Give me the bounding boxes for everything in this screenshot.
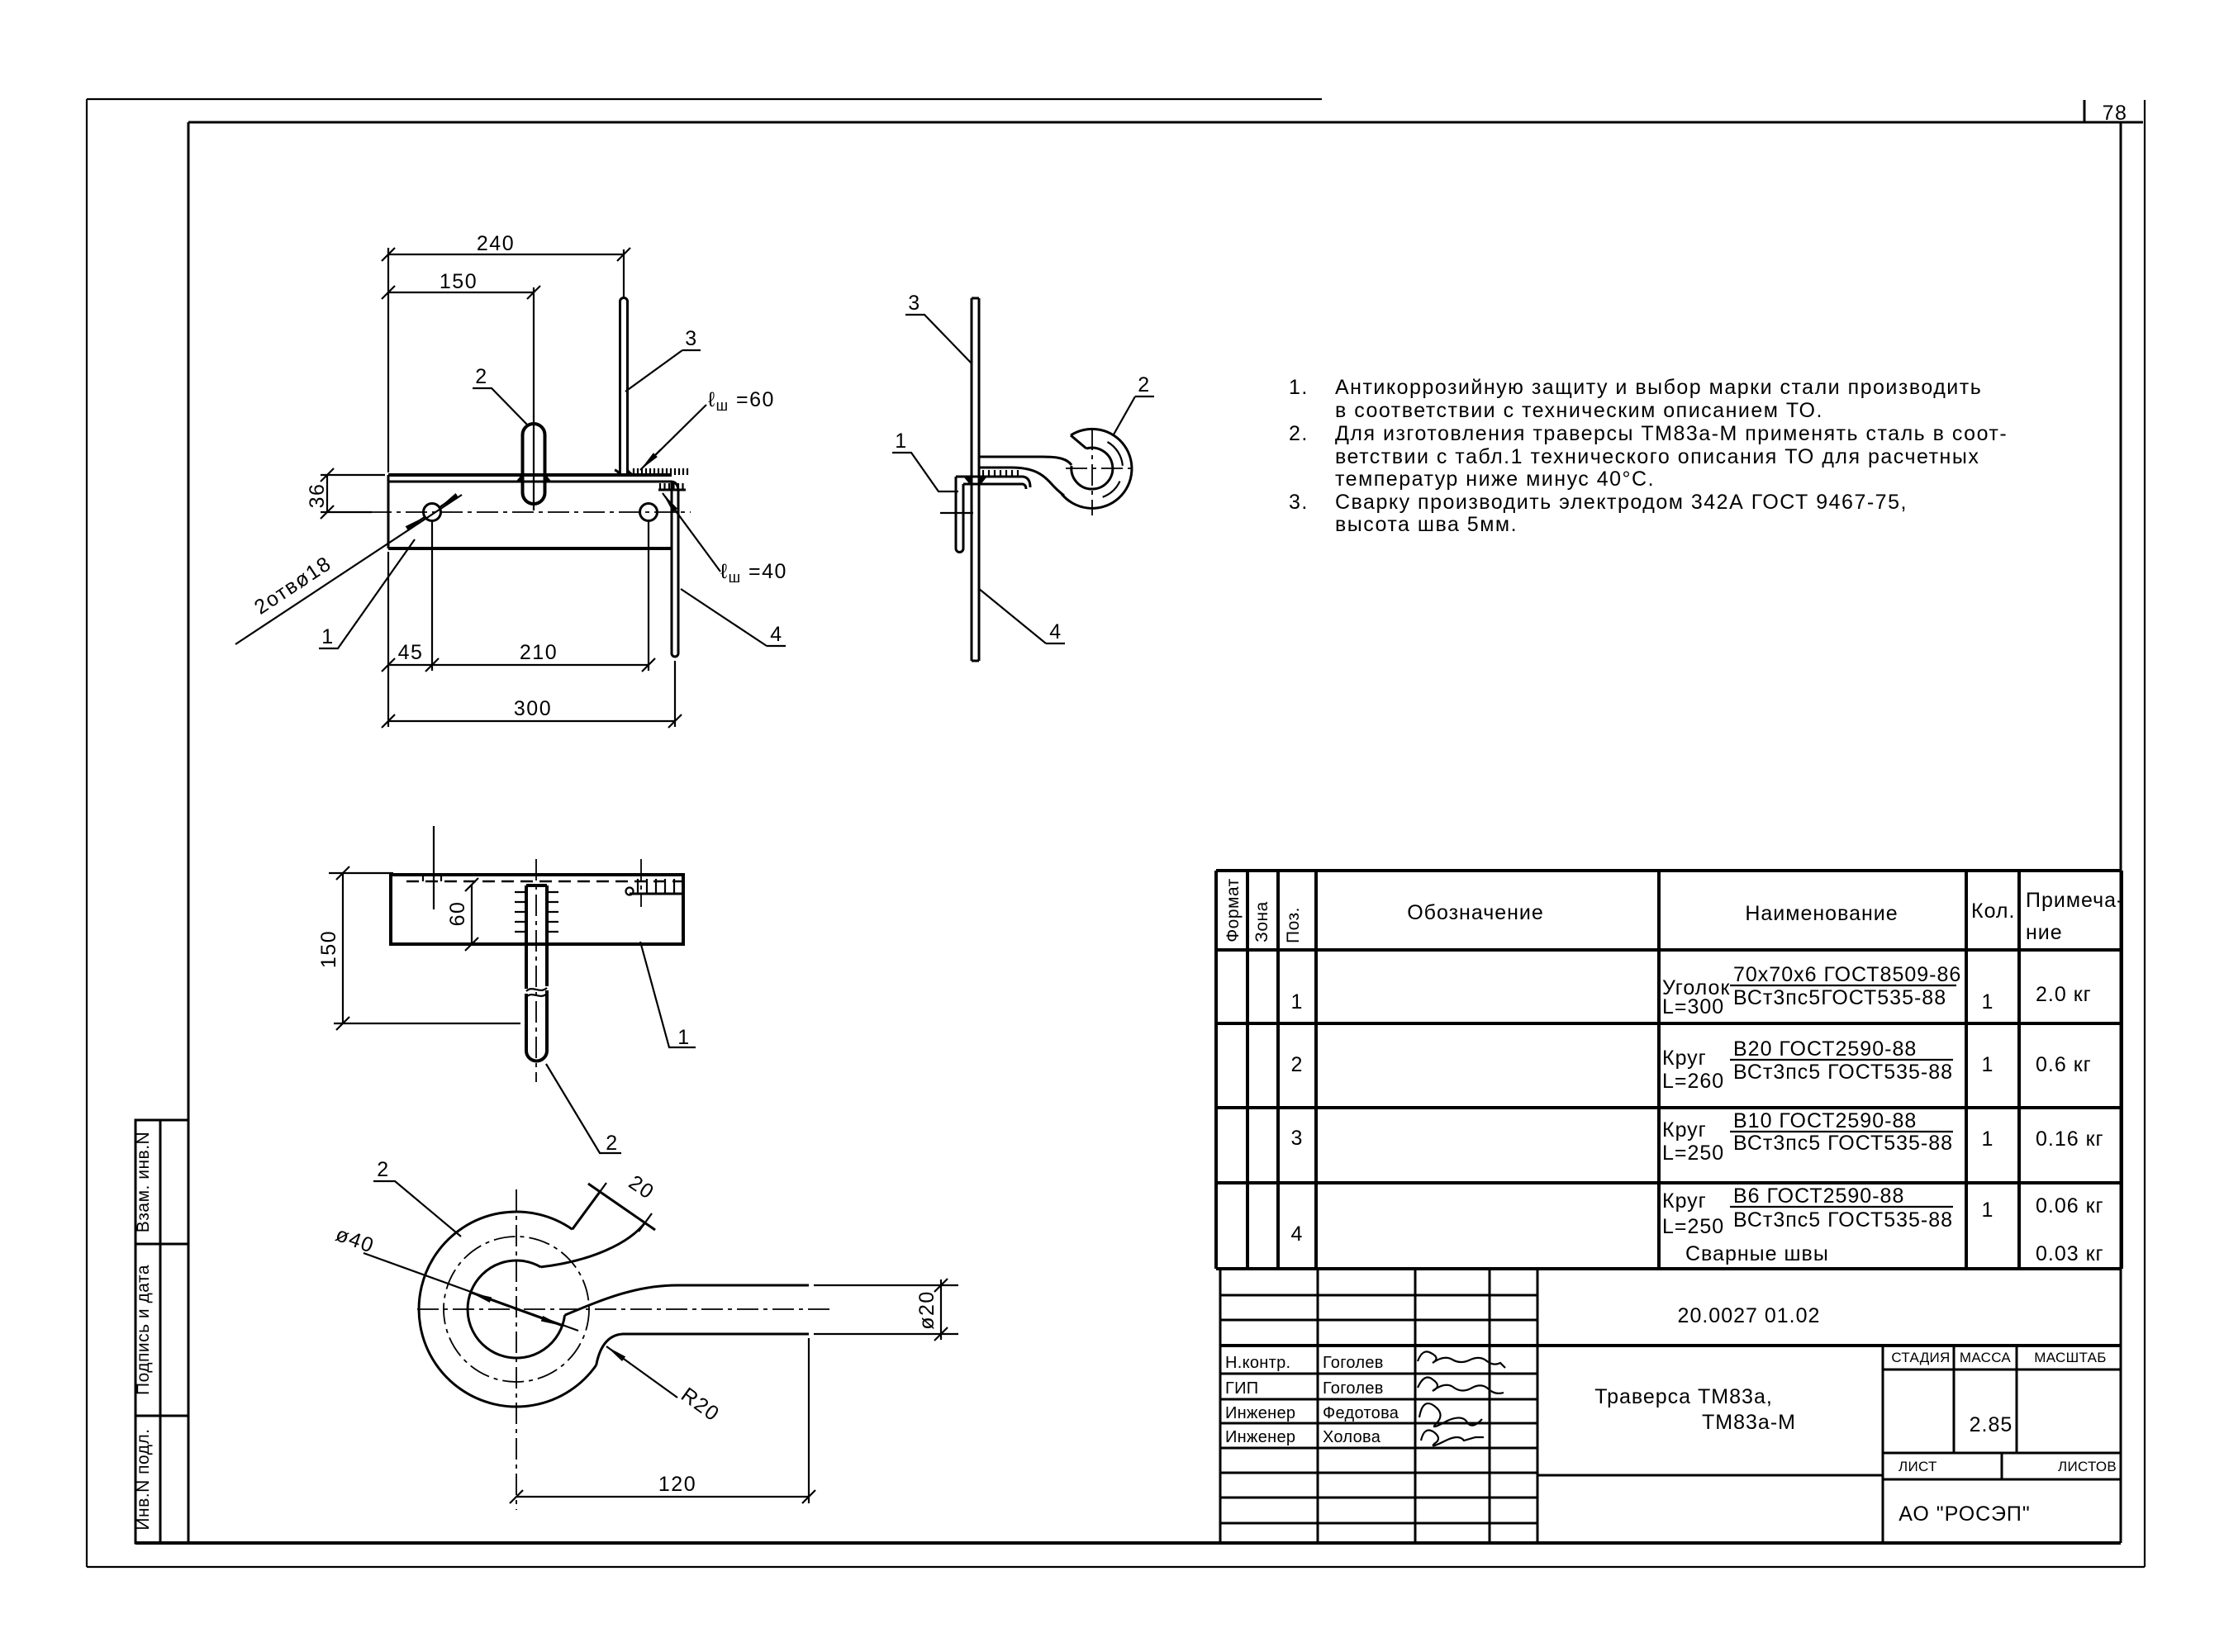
svg-text:3: 3 (1291, 1127, 1304, 1150)
svg-text:Зона: Зона (1252, 901, 1271, 942)
svg-text:L=300: L=300 (1662, 995, 1724, 1018)
svg-text:0.03 кг: 0.03 кг (2036, 1242, 2104, 1265)
svg-text:1: 1 (1982, 1053, 1994, 1076)
svg-text:1.: 1. (1289, 376, 1309, 399)
svg-text:1: 1 (1291, 990, 1304, 1014)
svg-text:Поз.: Поз. (1284, 907, 1303, 943)
svg-text:Сварные швы: Сварные швы (1685, 1242, 1829, 1265)
svg-text:3: 3 (908, 292, 920, 315)
svg-text:1: 1 (1982, 990, 1994, 1014)
svg-text:ветствии с табл.1 технического: ветствии с табл.1 технического описания … (1335, 445, 1979, 468)
svg-text:ВСт3пс5 ГОСТ535-88: ВСт3пс5 ГОСТ535-88 (1733, 1208, 1953, 1232)
svg-text:Кол.: Кол. (1971, 900, 2015, 923)
svg-text:4: 4 (1291, 1222, 1304, 1246)
svg-text:1: 1 (1982, 1127, 1994, 1151)
svg-text:1: 1 (1982, 1199, 1994, 1222)
svg-text:В20 ГОСТ2590-88: В20 ГОСТ2590-88 (1733, 1037, 1917, 1061)
svg-text:2: 2 (475, 365, 487, 388)
svg-text:Формат: Формат (1224, 878, 1243, 942)
svg-text:L=250: L=250 (1662, 1215, 1724, 1238)
svg-text:3: 3 (685, 327, 697, 350)
svg-text:2.0 кг: 2.0 кг (2036, 983, 2092, 1006)
svg-text:1: 1 (321, 625, 334, 648)
svg-text:ø20: ø20 (915, 1290, 939, 1330)
svg-text:ВСт3пс5 ГОСТ535-88: ВСт3пс5 ГОСТ535-88 (1733, 1061, 1953, 1084)
svg-text:240: 240 (477, 232, 515, 255)
svg-text:Гоголев: Гоголев (1323, 1354, 1384, 1372)
svg-text:2: 2 (377, 1158, 389, 1181)
svg-text:Примеча-: Примеча- (2026, 889, 2124, 912)
svg-text:4: 4 (770, 623, 782, 646)
svg-text:150: 150 (440, 270, 478, 293)
svg-text:150: 150 (317, 930, 340, 968)
svg-text:20.0027 01.02: 20.0027 01.02 (1678, 1304, 1821, 1327)
svg-text:1: 1 (895, 430, 907, 453)
svg-text:45: 45 (398, 641, 424, 664)
svg-text:в соответствии с техническим о: в соответствии с техническим описанием Т… (1335, 399, 1823, 422)
svg-text:ЛИСТОВ: ЛИСТОВ (2058, 1459, 2117, 1474)
svg-text:Сварку производить электродом: Сварку производить электродом 342А ГОСТ … (1335, 491, 1908, 514)
svg-text:L=260: L=260 (1662, 1070, 1724, 1093)
svg-text:Траверса ТМ83а,: Траверса ТМ83а, (1594, 1385, 1773, 1408)
svg-text:ние: ние (2026, 921, 2063, 944)
svg-text:2.85: 2.85 (1970, 1413, 2013, 1436)
svg-text:70x70x6 ГОСТ8509-86: 70x70x6 ГОСТ8509-86 (1733, 963, 1961, 986)
svg-text:300: 300 (514, 697, 552, 720)
svg-text:Н.контр.: Н.контр. (1225, 1354, 1290, 1372)
svg-text:СТАДИЯ: СТАДИЯ (1891, 1350, 1950, 1365)
svg-text:1: 1 (677, 1026, 690, 1049)
svg-text:В10 ГОСТ2590-88: В10 ГОСТ2590-88 (1733, 1109, 1917, 1132)
svg-text:0.06 кг: 0.06 кг (2036, 1194, 2104, 1218)
svg-text:ЛИСТ: ЛИСТ (1898, 1459, 1937, 1474)
svg-text:4: 4 (1049, 620, 1062, 643)
svg-text:Для изготовления траверсы ТМ83: Для изготовления траверсы ТМ83а-М примен… (1335, 422, 2008, 445)
svg-text:60: 60 (446, 901, 469, 927)
svg-text:Круг: Круг (1662, 1189, 1707, 1213)
svg-text:высота шва 5мм.: высота шва 5мм. (1335, 513, 1518, 536)
svg-text:78: 78 (2103, 102, 2128, 125)
svg-text:2: 2 (606, 1132, 618, 1155)
svg-text:3.: 3. (1289, 491, 1309, 514)
svg-text:0.6 кг: 0.6 кг (2036, 1053, 2092, 1076)
svg-text:Подпись и дата: Подпись и дата (134, 1265, 153, 1395)
svg-text:АО "РОСЭП": АО "РОСЭП" (1898, 1502, 2031, 1526)
svg-text:Инженер: Инженер (1225, 1428, 1295, 1446)
svg-text:L=250: L=250 (1662, 1142, 1724, 1165)
svg-text:2: 2 (1291, 1053, 1304, 1076)
svg-text:2: 2 (1138, 373, 1150, 396)
svg-text:температур ниже минус 40°С.: температур ниже минус 40°С. (1335, 468, 1655, 491)
svg-text:Круг: Круг (1662, 1047, 1707, 1070)
svg-text:Обозначение: Обозначение (1407, 901, 1544, 924)
svg-text:Взам. инв.N: Взам. инв.N (134, 1132, 153, 1232)
svg-text:Наименование: Наименование (1745, 902, 1898, 925)
svg-text:Антикоррозийную защиту и выбор: Антикоррозийную защиту и выбор марки ста… (1335, 376, 1982, 399)
svg-text:Круг: Круг (1662, 1118, 1707, 1142)
svg-text:ГИП: ГИП (1225, 1379, 1258, 1398)
svg-text:МАСШТАБ: МАСШТАБ (2034, 1350, 2106, 1365)
svg-text:В6 ГОСТ2590-88: В6 ГОСТ2590-88 (1733, 1184, 1904, 1208)
svg-text:МАССА: МАССА (1960, 1350, 2012, 1365)
svg-text:ВСт3пс5ГОСТ535-88: ВСт3пс5ГОСТ535-88 (1733, 986, 1946, 1009)
svg-text:210: 210 (520, 641, 558, 664)
svg-text:Инв.N подл.: Инв.N подл. (134, 1428, 153, 1530)
svg-text:Холова: Холова (1323, 1428, 1381, 1446)
svg-text:Федотова: Федотова (1323, 1404, 1400, 1422)
svg-text:120: 120 (658, 1473, 696, 1496)
svg-text:ВСт3пс5 ГОСТ535-88: ВСт3пс5 ГОСТ535-88 (1733, 1132, 1953, 1155)
svg-text:2.: 2. (1289, 422, 1309, 445)
svg-text:Инженер: Инженер (1225, 1404, 1295, 1422)
svg-text:ТМ83а-М: ТМ83а-М (1702, 1411, 1796, 1434)
svg-text:Гоголев: Гоголев (1323, 1379, 1384, 1398)
svg-text:36: 36 (306, 483, 329, 509)
svg-text:0.16 кг: 0.16 кг (2036, 1127, 2104, 1151)
